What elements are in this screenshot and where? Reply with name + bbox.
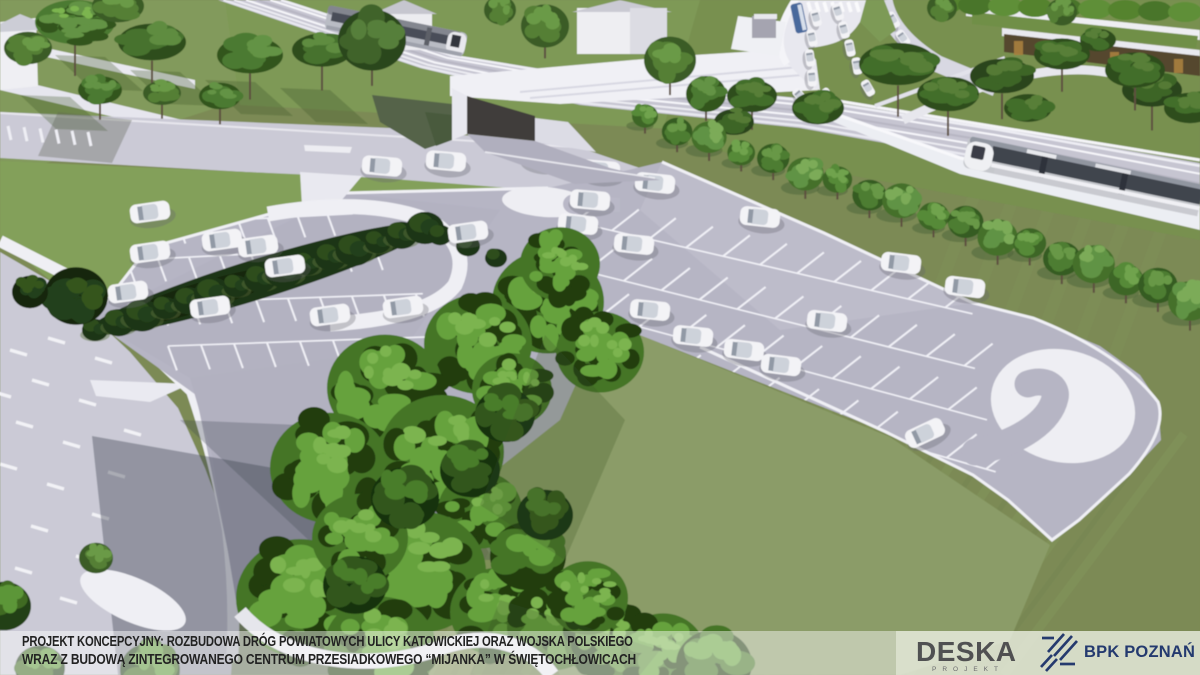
svg-text:BPK POZNAŃ: BPK POZNAŃ — [1084, 642, 1195, 661]
svg-text:PROJEKT KONCEPCYJNY: ROZBUDOWA: PROJEKT KONCEPCYJNY: ROZBUDOWA DRÓG POWI… — [22, 632, 633, 649]
svg-text:DESKA: DESKA — [916, 636, 1017, 667]
svg-text:PROJEKT: PROJEKT — [932, 666, 1004, 673]
svg-text:WRAZ Z BUDOWĄ ZINTEGROWANEGO C: WRAZ Z BUDOWĄ ZINTEGROWANEGO CENTRUM PRZ… — [22, 651, 636, 668]
